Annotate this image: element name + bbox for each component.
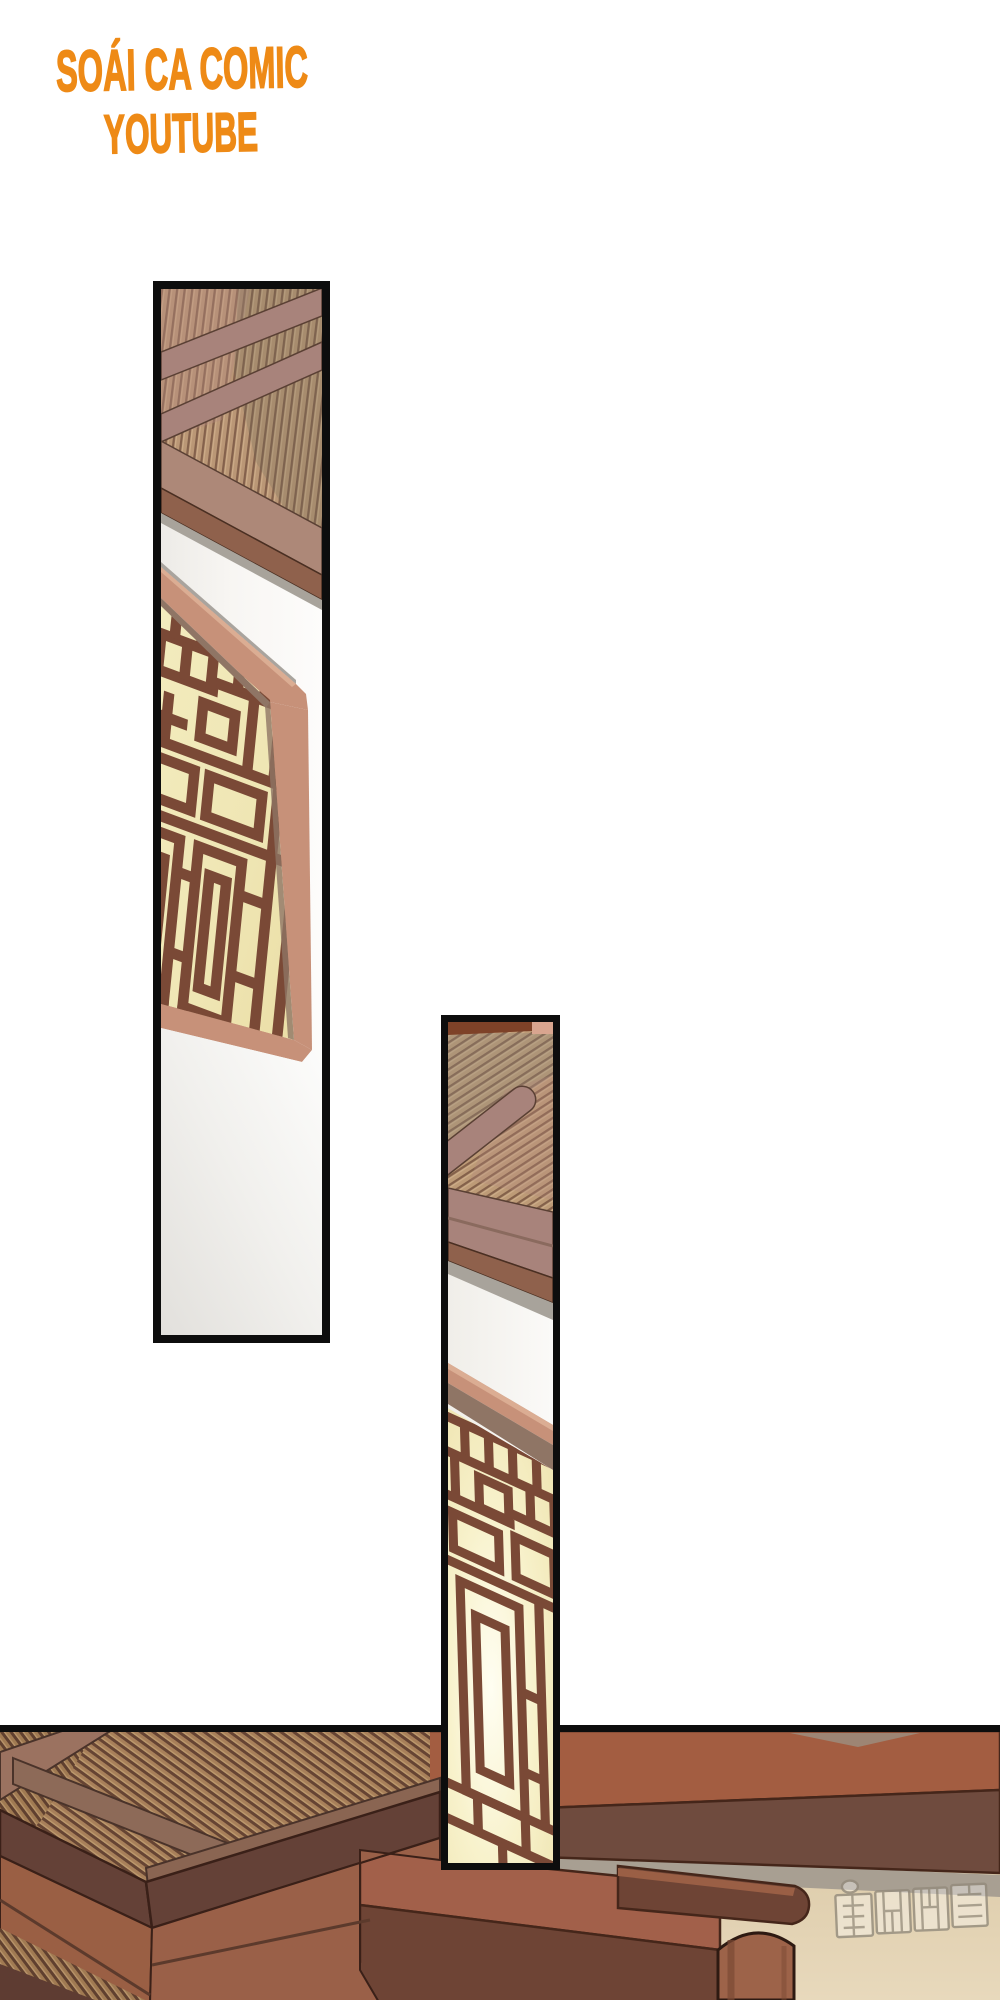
svg-text:YOUTUBE: YOUTUBE <box>103 101 258 166</box>
svg-text:SOÁI CA COMIC: SOÁI CA COMIC <box>55 35 308 104</box>
